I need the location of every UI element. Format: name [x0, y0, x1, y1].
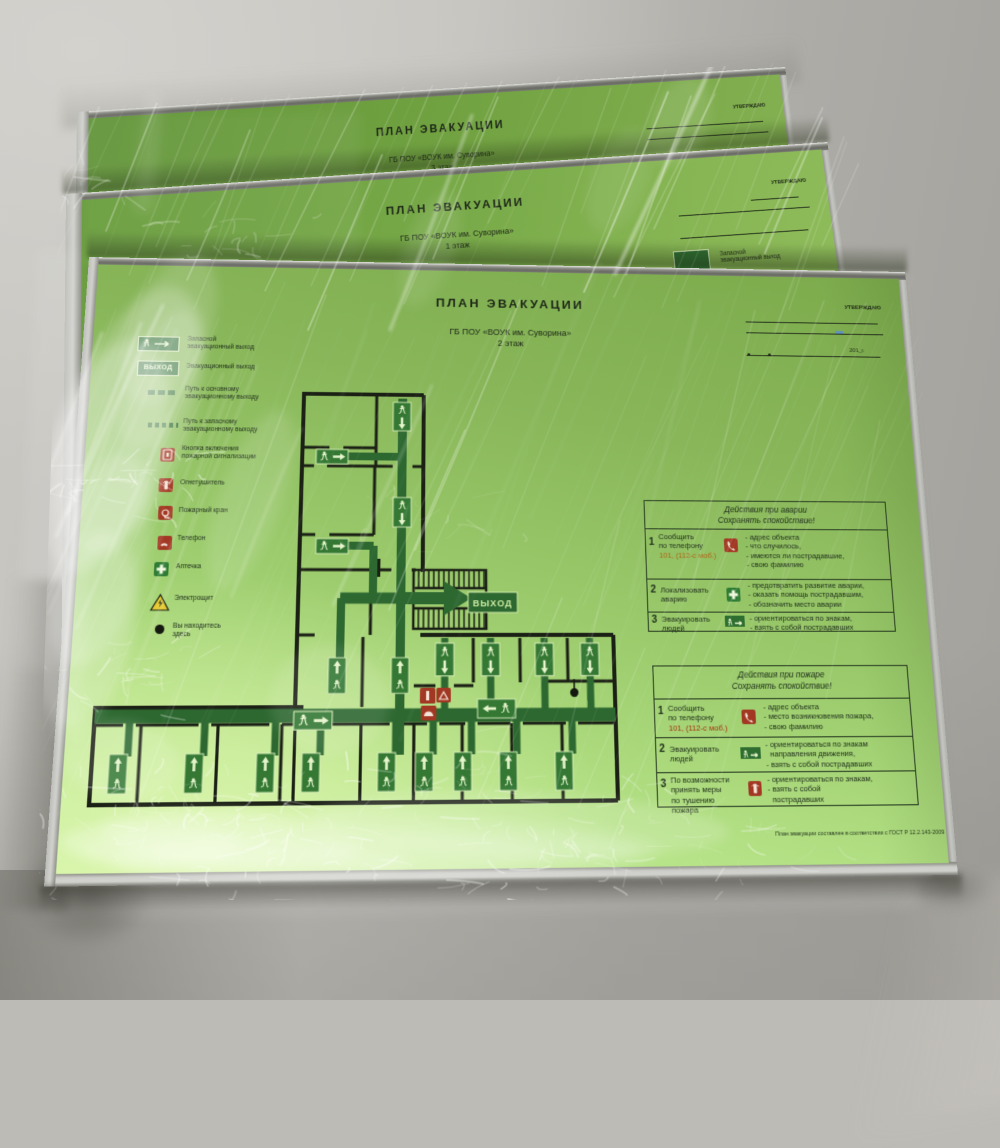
svg-text:ВЫХОД: ВЫХОД	[473, 598, 513, 609]
